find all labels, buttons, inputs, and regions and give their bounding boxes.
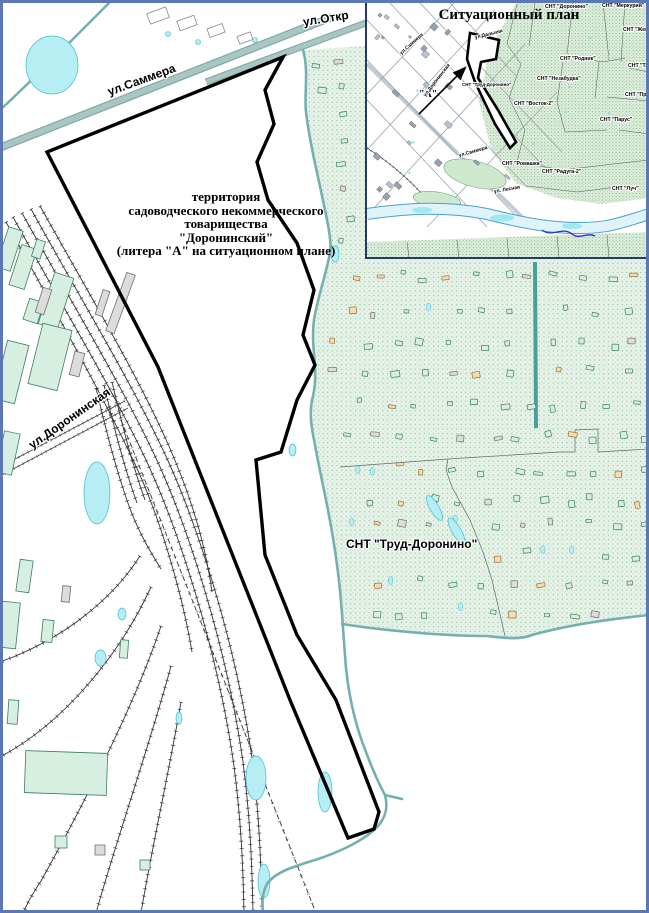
territory-description: территория садоводческого некоммерческог… bbox=[66, 190, 386, 258]
inset-snt-zhem: СНТ "Жем bbox=[623, 28, 649, 33]
inset-snt-vostok-2: СНТ "Восток-2" bbox=[514, 102, 554, 107]
territory-line: товарищества bbox=[66, 217, 386, 231]
inset-snt-parus: СНТ "Парус" bbox=[600, 118, 632, 123]
inset-snt-romashka: СНТ "Ромашка" bbox=[502, 162, 542, 167]
inset-title: Ситуационный план bbox=[439, 8, 580, 23]
inset-snt-doronino: СНТ "Доронино" bbox=[545, 5, 588, 10]
inset-street-lesnaya: ул. Лесная bbox=[494, 185, 521, 195]
snt-trud-doronino-label: СНТ "Труд-Доронино" bbox=[346, 538, 477, 550]
inset-snt-tr: СНТ "Тр bbox=[628, 64, 649, 69]
inset-snt-pr: СНТ "Пр bbox=[625, 93, 646, 98]
inset-street-dalnyaya: ул.Дальняя bbox=[474, 29, 503, 41]
inset-snt-trud-doronino: СНТ "Труд-Доронино" bbox=[462, 83, 511, 88]
cadastral-map-page: ул.Саммераул.Открул.ДоронинскаяСНТ "Труд… bbox=[0, 0, 649, 913]
inset-snt-merkuriy: СНТ "Меркурий" bbox=[602, 4, 644, 9]
street-label-sammera: ул.Саммера bbox=[106, 62, 177, 98]
territory-line: (литера "А" на ситуационном плане) bbox=[66, 244, 386, 258]
street-label-doroninskaya: ул.Доронинская bbox=[27, 386, 113, 451]
inset-street-sammera-1: ул.Саммера bbox=[399, 33, 424, 57]
inset-street-sammera-2: ул.Саммера bbox=[458, 146, 488, 159]
situation-plan-inset: Ситуационный план СНТ "Доронино"СНТ "Мер… bbox=[365, 0, 649, 259]
territory-line: территория bbox=[66, 190, 386, 204]
inset-snt-rodnik: СНТ "Родник" bbox=[560, 57, 596, 62]
inset-snt-raduga-2: СНТ "Радуга-2" bbox=[542, 170, 581, 175]
territory-line: садоводческого некоммерческого bbox=[66, 204, 386, 218]
inset-street-doroninskaya: ул.Доронинская bbox=[423, 63, 452, 98]
inset-snt-luch: СНТ "Луч" bbox=[612, 187, 639, 192]
territory-line: "Доронинский" bbox=[66, 231, 386, 245]
inset-snt-nezabudka: СНТ "Незабудка" bbox=[537, 77, 581, 82]
street-label-otkr: ул.Откр bbox=[302, 9, 349, 28]
inset-map-labels: Ситуационный план СНТ "Доронино"СНТ "Мер… bbox=[367, 2, 647, 257]
